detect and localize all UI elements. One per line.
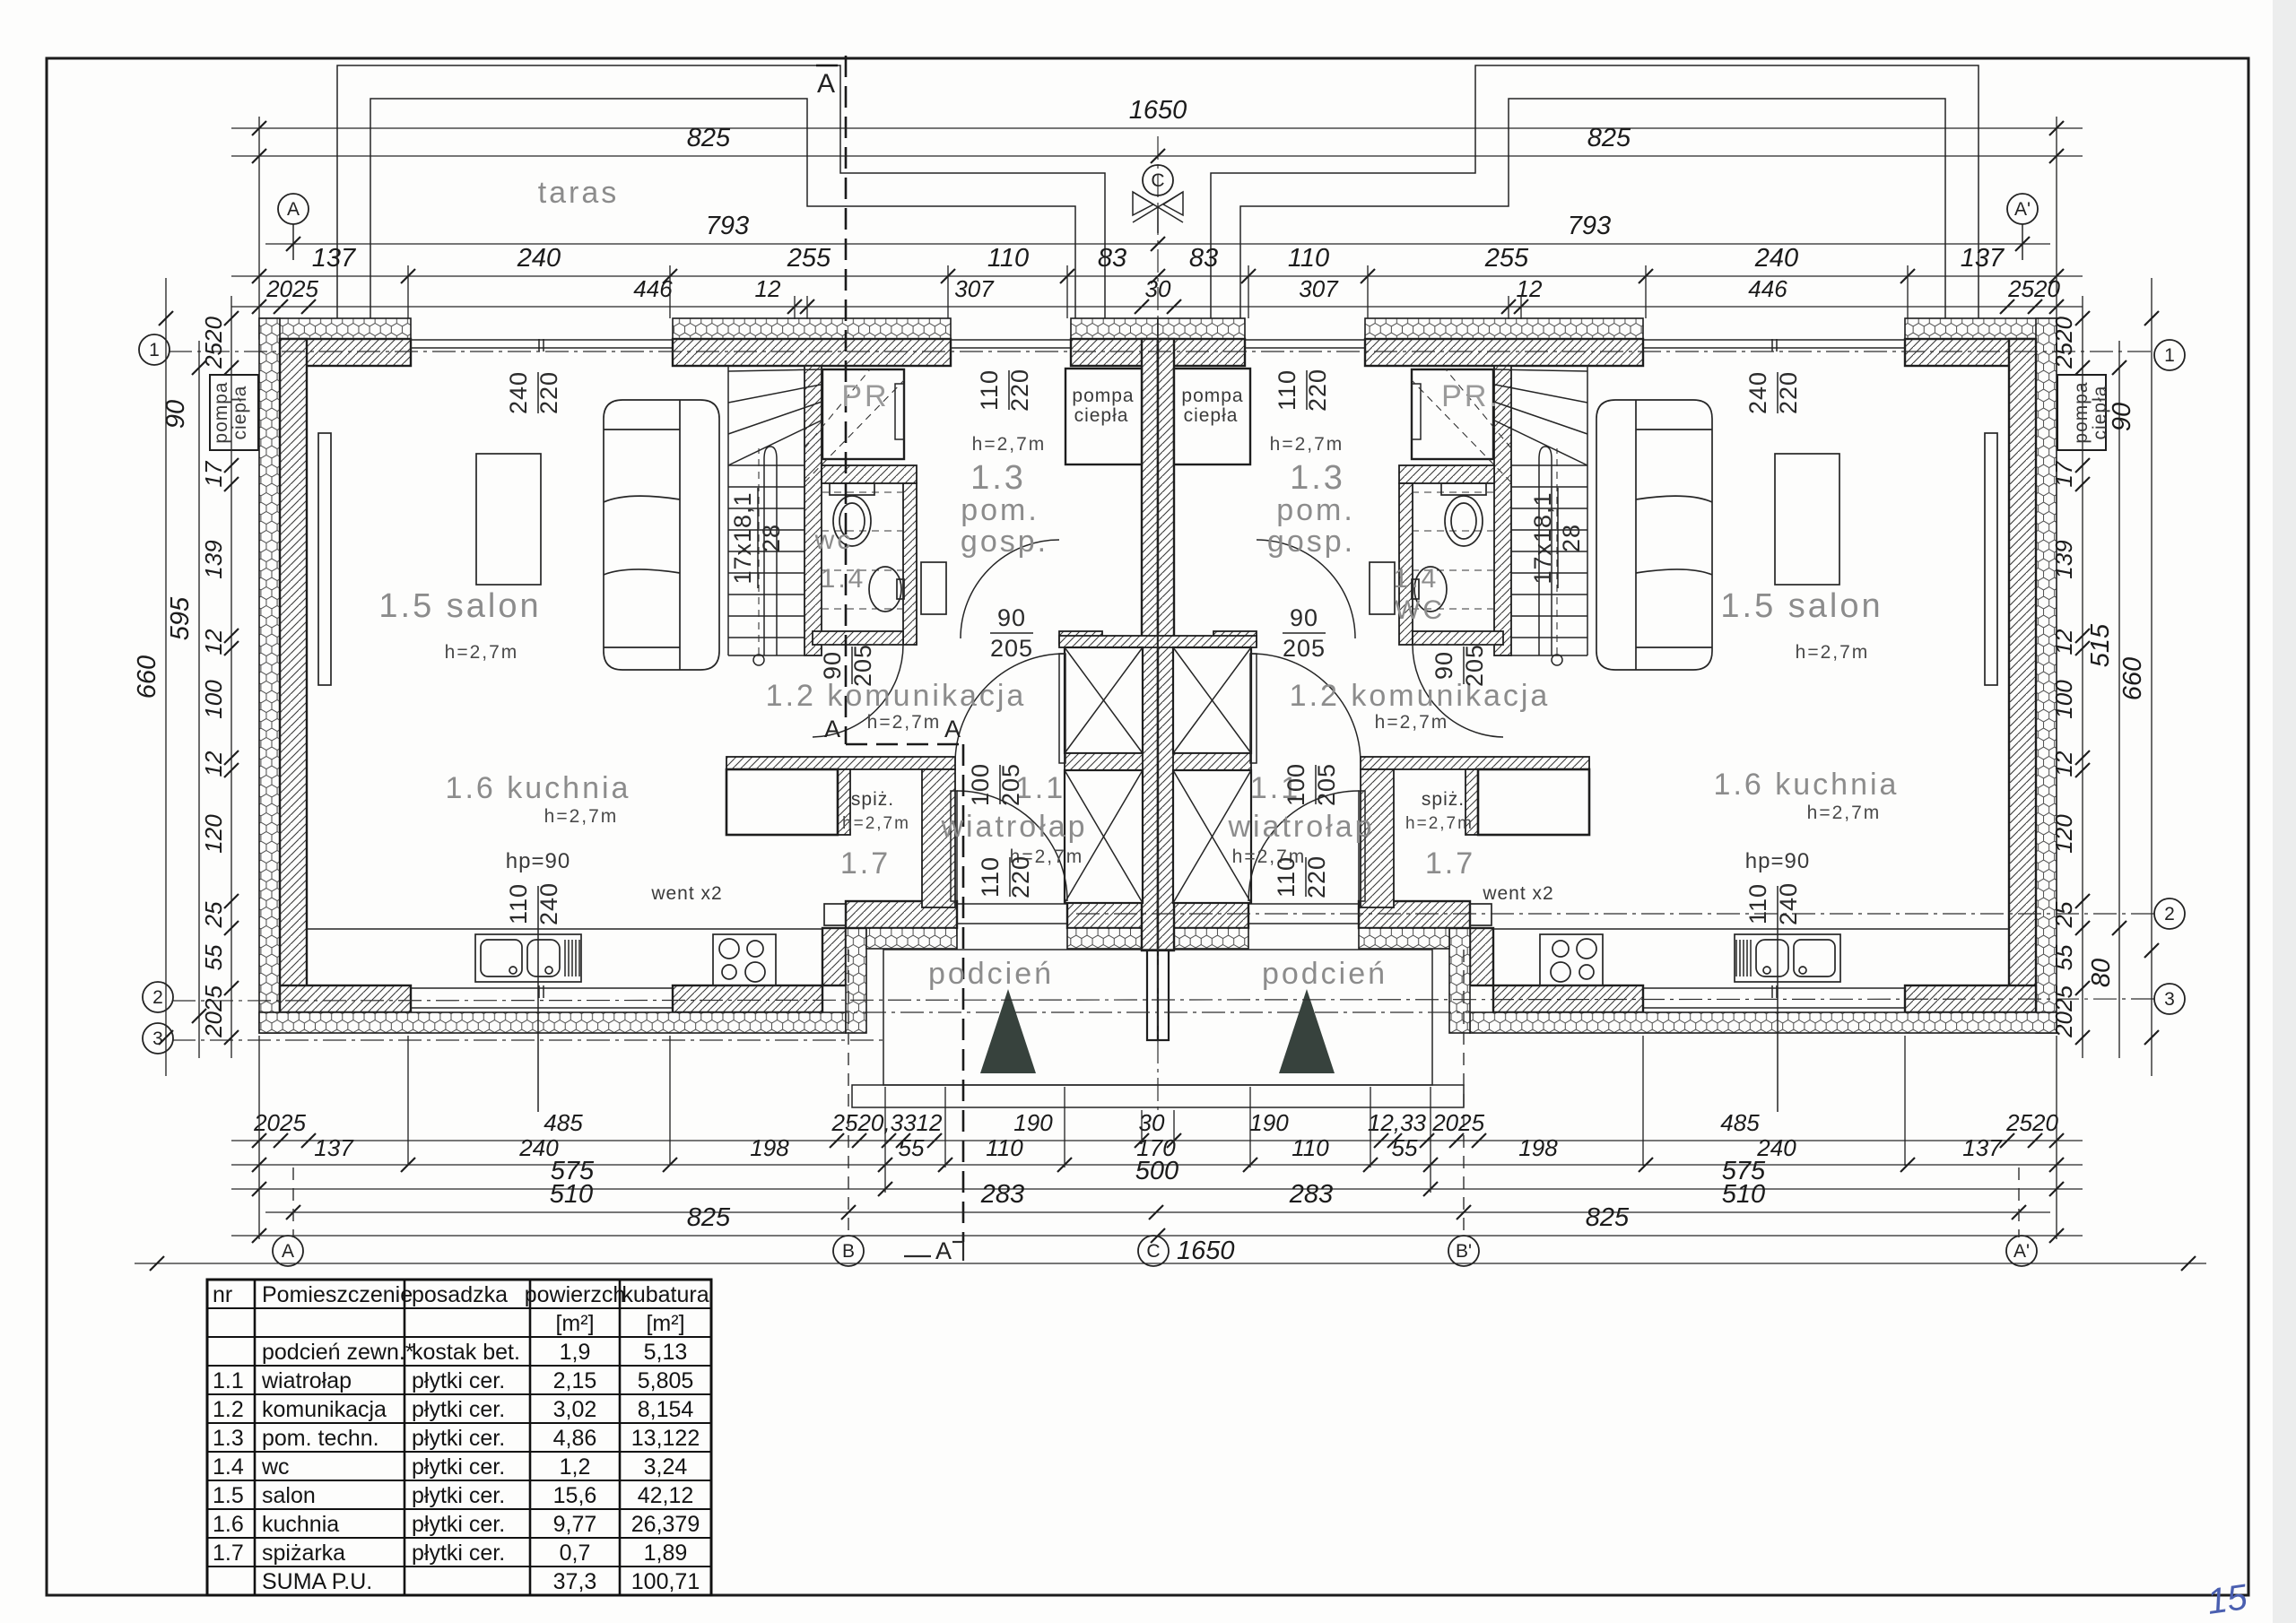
- svg-text:pom.: pom.: [961, 493, 1039, 527]
- svg-text:137: 137: [314, 1134, 354, 1161]
- svg-text:hp=90: hp=90: [1745, 849, 1810, 873]
- svg-text:12: 12: [2050, 751, 2077, 777]
- svg-text:1650: 1650: [1129, 96, 1187, 125]
- svg-text:17: 17: [2050, 460, 2077, 487]
- svg-text:1.1: 1.1: [213, 1368, 244, 1393]
- svg-text:28: 28: [1558, 524, 1585, 552]
- svg-text:went x2: went x2: [650, 883, 722, 904]
- svg-text:37,3: 37,3: [553, 1569, 597, 1594]
- svg-text:100: 100: [1283, 763, 1309, 806]
- svg-text:2520,3312: 2520,3312: [831, 1109, 943, 1136]
- svg-text:90: 90: [997, 604, 1026, 631]
- svg-text:485: 485: [1720, 1109, 1760, 1136]
- svg-text:30: 30: [1145, 275, 1171, 302]
- svg-text:240: 240: [535, 882, 562, 925]
- svg-text:283: 283: [980, 1180, 1024, 1209]
- svg-text:510: 510: [1722, 1180, 1765, 1209]
- svg-text:1.7: 1.7: [213, 1541, 244, 1566]
- svg-text:660: 660: [133, 655, 161, 699]
- svg-text:1650: 1650: [1177, 1237, 1235, 1265]
- svg-text:kubatura: kubatura: [622, 1282, 709, 1307]
- svg-text:A': A': [2013, 1241, 2030, 1262]
- svg-text:h=2,7m: h=2,7m: [1796, 642, 1870, 663]
- svg-text:793: 793: [1568, 212, 1611, 240]
- svg-text:h=2,7m: h=2,7m: [842, 814, 910, 833]
- svg-text:90: 90: [1290, 604, 1318, 631]
- svg-text:205: 205: [1461, 644, 1488, 687]
- svg-text:wc: wc: [814, 525, 854, 555]
- svg-text:190: 190: [1013, 1109, 1053, 1136]
- svg-text:660: 660: [2118, 657, 2147, 700]
- svg-text:podcień: podcień: [928, 957, 1054, 991]
- svg-text:3,24: 3,24: [644, 1454, 688, 1480]
- svg-text:Pomieszczenie: Pomieszczenie: [262, 1282, 413, 1307]
- svg-text:2520: 2520: [2005, 1109, 2058, 1136]
- svg-text:2520: 2520: [2007, 275, 2060, 302]
- svg-text:spiż.: spiż.: [1422, 789, 1465, 810]
- svg-text:pompa: pompa: [1072, 386, 1134, 406]
- svg-text:198: 198: [1518, 1134, 1558, 1161]
- svg-text:205: 205: [1283, 635, 1326, 662]
- svg-text:12: 12: [200, 751, 227, 777]
- svg-text:55: 55: [1392, 1134, 1418, 1161]
- svg-text:wc: wc: [261, 1454, 290, 1480]
- svg-text:h=2,7m: h=2,7m: [972, 434, 1047, 455]
- svg-text:1.6: 1.6: [213, 1512, 244, 1537]
- svg-text:PR.: PR.: [1441, 379, 1500, 413]
- svg-text:120: 120: [2050, 814, 2077, 854]
- svg-text:[m²]: [m²]: [555, 1311, 594, 1336]
- svg-text:ciepła: ciepła: [230, 386, 250, 440]
- svg-text:110: 110: [1291, 1134, 1329, 1161]
- svg-text:83: 83: [1189, 244, 1218, 273]
- svg-text:515: 515: [2086, 623, 2115, 667]
- svg-text:825: 825: [1586, 1203, 1630, 1232]
- svg-text:1.7: 1.7: [1425, 846, 1475, 881]
- svg-text:13,122: 13,122: [631, 1426, 700, 1451]
- svg-text:powierzch: powierzch: [525, 1282, 626, 1307]
- svg-text:płytki cer.: płytki cer.: [412, 1512, 505, 1537]
- svg-text:C: C: [1151, 170, 1164, 191]
- svg-text:gosp.: gosp.: [1267, 525, 1355, 559]
- svg-text:110: 110: [1744, 883, 1771, 924]
- svg-text:2520: 2520: [2050, 317, 2077, 369]
- svg-text:podcień zewn.*: podcień zewn.*: [262, 1340, 414, 1365]
- svg-text:137: 137: [1962, 1134, 2003, 1161]
- svg-text:płytki cer.: płytki cer.: [412, 1541, 505, 1566]
- svg-text:17x18,1: 17x18,1: [1529, 491, 1556, 584]
- svg-text:220: 220: [1007, 855, 1034, 898]
- svg-text:B: B: [842, 1241, 855, 1262]
- svg-text:139: 139: [2050, 540, 2077, 578]
- svg-text:12: 12: [1517, 275, 1543, 302]
- svg-text:h=2,7m: h=2,7m: [445, 642, 519, 663]
- svg-text:salon: salon: [262, 1483, 316, 1508]
- svg-text:1,89: 1,89: [644, 1541, 688, 1566]
- svg-text:1: 1: [149, 340, 160, 360]
- svg-text:h=2,7m: h=2,7m: [1375, 712, 1449, 733]
- svg-text:2: 2: [152, 987, 163, 1008]
- svg-text:15: 15: [2205, 1577, 2250, 1622]
- svg-text:1,9: 1,9: [560, 1340, 591, 1365]
- svg-text:90: 90: [819, 651, 846, 680]
- svg-text:1.3: 1.3: [1290, 459, 1345, 497]
- svg-text:205: 205: [1313, 763, 1340, 806]
- svg-text:2025: 2025: [253, 1109, 306, 1136]
- svg-text:B': B': [1456, 1241, 1472, 1262]
- svg-text:446: 446: [1748, 275, 1787, 302]
- svg-text:taras: taras: [538, 176, 620, 210]
- svg-text:110: 110: [986, 1134, 1023, 1161]
- svg-text:wiatrołap: wiatrołap: [261, 1368, 352, 1393]
- svg-text:1.3: 1.3: [213, 1426, 244, 1451]
- svg-text:255: 255: [787, 244, 831, 273]
- svg-text:1.4: 1.4: [213, 1454, 244, 1480]
- svg-text:1.2: 1.2: [213, 1397, 244, 1422]
- svg-text:205: 205: [997, 763, 1024, 806]
- svg-text:1.5 salon: 1.5 salon: [1720, 587, 1883, 625]
- svg-text:1.3: 1.3: [970, 459, 1026, 497]
- svg-text:A: A: [824, 716, 840, 742]
- svg-text:3: 3: [2164, 989, 2175, 1010]
- svg-text:hp=90: hp=90: [506, 849, 570, 873]
- svg-text:4,86: 4,86: [553, 1426, 597, 1451]
- svg-text:137: 137: [312, 244, 357, 273]
- svg-text:A': A': [2014, 199, 2031, 220]
- svg-text:255: 255: [1484, 244, 1529, 273]
- svg-text:gosp.: gosp.: [961, 525, 1048, 559]
- svg-text:podcień: podcień: [1262, 957, 1387, 991]
- svg-text:went x2: went x2: [1482, 883, 1553, 904]
- svg-text:5,13: 5,13: [644, 1340, 688, 1365]
- svg-text:kostak bet.: kostak bet.: [412, 1340, 520, 1365]
- svg-text:100: 100: [200, 680, 227, 719]
- svg-text:2,15: 2,15: [553, 1368, 597, 1393]
- svg-text:pompa: pompa: [2071, 381, 2092, 443]
- svg-text:A: A: [282, 1241, 294, 1262]
- svg-text:12: 12: [755, 275, 781, 302]
- svg-text:55: 55: [200, 944, 227, 970]
- svg-text:500: 500: [1135, 1157, 1178, 1185]
- svg-text:posadzka: posadzka: [412, 1282, 508, 1307]
- svg-text:1.6 kuchnia: 1.6 kuchnia: [1714, 768, 1900, 802]
- svg-text:240: 240: [1744, 371, 1771, 414]
- svg-text:2025: 2025: [2050, 985, 2077, 1038]
- svg-text:110: 110: [1273, 856, 1300, 898]
- svg-text:190: 190: [1249, 1109, 1289, 1136]
- svg-text:55: 55: [899, 1134, 925, 1161]
- svg-text:SUMA P.U.: SUMA P.U.: [262, 1569, 372, 1594]
- svg-text:0,7: 0,7: [560, 1541, 591, 1566]
- svg-text:595: 595: [166, 596, 195, 640]
- svg-text:płytki cer.: płytki cer.: [412, 1454, 505, 1480]
- svg-text:1.5 salon: 1.5 salon: [378, 587, 541, 625]
- svg-text:A: A: [935, 1237, 952, 1264]
- svg-text:A: A: [287, 199, 300, 220]
- svg-text:[m²]: [m²]: [646, 1311, 684, 1336]
- svg-text:793: 793: [706, 212, 749, 240]
- svg-text:205: 205: [990, 635, 1033, 662]
- svg-text:485: 485: [544, 1109, 583, 1136]
- svg-text:825: 825: [687, 1203, 731, 1232]
- svg-text:110: 110: [505, 883, 532, 924]
- svg-text:30: 30: [1139, 1109, 1165, 1136]
- svg-text:220: 220: [1303, 855, 1330, 898]
- svg-text:9,77: 9,77: [553, 1512, 597, 1537]
- svg-text:płytki cer.: płytki cer.: [412, 1368, 505, 1393]
- svg-text:2025: 2025: [265, 275, 318, 302]
- svg-text:5,805: 5,805: [638, 1368, 694, 1393]
- svg-text:1.2 komunikacja: 1.2 komunikacja: [1290, 679, 1551, 713]
- svg-text:198: 198: [750, 1134, 789, 1161]
- svg-text:283: 283: [1289, 1180, 1333, 1209]
- svg-text:100: 100: [2050, 680, 2077, 719]
- svg-text:spiż.: spiż.: [851, 789, 894, 810]
- svg-text:510: 510: [550, 1180, 593, 1209]
- svg-text:pompa: pompa: [1181, 386, 1243, 406]
- svg-text:ciepła: ciepła: [2090, 386, 2110, 440]
- svg-text:3,02: 3,02: [553, 1397, 597, 1422]
- svg-text:55: 55: [2050, 944, 2077, 970]
- svg-text:h=2,7m: h=2,7m: [1270, 434, 1344, 455]
- svg-text:płytki cer.: płytki cer.: [412, 1397, 505, 1422]
- svg-text:240: 240: [505, 371, 532, 414]
- svg-text:25: 25: [200, 901, 227, 928]
- svg-text:komunikacja: komunikacja: [262, 1397, 387, 1422]
- svg-text:wiatrołap: wiatrołap: [940, 810, 1087, 844]
- svg-text:kuchnia: kuchnia: [262, 1512, 339, 1537]
- svg-text:h=2,7m: h=2,7m: [867, 712, 942, 733]
- svg-text:1,2: 1,2: [560, 1454, 591, 1480]
- svg-text:139: 139: [200, 540, 227, 578]
- svg-text:15,6: 15,6: [553, 1483, 597, 1508]
- svg-text:205: 205: [849, 644, 876, 687]
- svg-text:26,379: 26,379: [631, 1512, 700, 1537]
- svg-text:1.6 kuchnia: 1.6 kuchnia: [446, 771, 631, 805]
- svg-text:446: 446: [633, 275, 673, 302]
- svg-text:12,33 2025: 12,33 2025: [1368, 1109, 1485, 1136]
- svg-text:110: 110: [1288, 244, 1329, 273]
- svg-text:220: 220: [535, 371, 562, 414]
- svg-text:1.4: 1.4: [1394, 564, 1439, 594]
- svg-text:240: 240: [517, 244, 561, 273]
- svg-text:137: 137: [1961, 244, 2005, 273]
- svg-text:2: 2: [2164, 904, 2175, 924]
- svg-text:wiatrołap: wiatrołap: [1227, 810, 1374, 844]
- svg-text:h=2,7m: h=2,7m: [544, 806, 619, 827]
- svg-text:80: 80: [2087, 959, 2116, 987]
- svg-text:8,154: 8,154: [638, 1397, 694, 1422]
- svg-text:110: 110: [987, 244, 1029, 273]
- svg-text:WC: WC: [1395, 595, 1445, 625]
- svg-text:240: 240: [1775, 882, 1802, 925]
- svg-text:83: 83: [1098, 244, 1126, 273]
- svg-text:A: A: [817, 69, 835, 99]
- svg-text:110: 110: [977, 856, 1004, 898]
- svg-text:pom.: pom.: [1276, 493, 1355, 527]
- svg-text:płytki cer.: płytki cer.: [412, 1483, 505, 1508]
- svg-text:3: 3: [152, 1028, 163, 1049]
- svg-text:240: 240: [1754, 244, 1798, 273]
- svg-text:110: 110: [976, 369, 1003, 411]
- svg-text:nr: nr: [213, 1282, 232, 1307]
- svg-text:C: C: [1146, 1241, 1160, 1262]
- svg-text:1.5: 1.5: [213, 1483, 244, 1508]
- svg-text:28: 28: [758, 524, 785, 552]
- svg-text:1.7: 1.7: [840, 846, 891, 881]
- svg-text:h=2,7m: h=2,7m: [1405, 814, 1474, 833]
- svg-text:307: 307: [1299, 275, 1339, 302]
- svg-text:1: 1: [2164, 345, 2175, 366]
- svg-text:220: 220: [1304, 369, 1331, 412]
- svg-text:90: 90: [1431, 651, 1457, 680]
- svg-text:spiżarka: spiżarka: [262, 1541, 345, 1566]
- svg-text:płytki cer.: płytki cer.: [412, 1426, 505, 1451]
- svg-text:1.2 komunikacja: 1.2 komunikacja: [766, 679, 1027, 713]
- svg-text:17x18,1: 17x18,1: [729, 491, 756, 584]
- svg-text:ciepła: ciepła: [1184, 405, 1239, 426]
- svg-text:17: 17: [200, 460, 227, 487]
- svg-text:pom. techn.: pom. techn.: [262, 1426, 379, 1451]
- svg-text:90: 90: [2108, 403, 2136, 431]
- svg-text:PR: PR: [841, 379, 889, 413]
- svg-text:120: 120: [200, 814, 227, 854]
- svg-text:42,12: 42,12: [638, 1483, 694, 1508]
- svg-text:12: 12: [2050, 629, 2077, 655]
- svg-text:h=2,7m: h=2,7m: [1807, 803, 1882, 823]
- svg-text:825: 825: [1587, 124, 1631, 152]
- svg-text:110: 110: [1274, 369, 1300, 411]
- svg-text:ciepła: ciepła: [1074, 405, 1129, 426]
- svg-text:307: 307: [954, 275, 995, 302]
- svg-text:25: 25: [2050, 901, 2077, 928]
- svg-text:A: A: [944, 716, 961, 742]
- svg-text:1.4: 1.4: [821, 564, 866, 594]
- svg-text:220: 220: [1006, 369, 1033, 412]
- svg-text:825: 825: [687, 124, 731, 152]
- svg-text:220: 220: [1775, 371, 1802, 414]
- svg-text:12: 12: [200, 629, 227, 655]
- svg-text:100: 100: [967, 763, 994, 806]
- svg-text:100,71: 100,71: [631, 1569, 700, 1594]
- svg-text:pompa: pompa: [211, 381, 231, 443]
